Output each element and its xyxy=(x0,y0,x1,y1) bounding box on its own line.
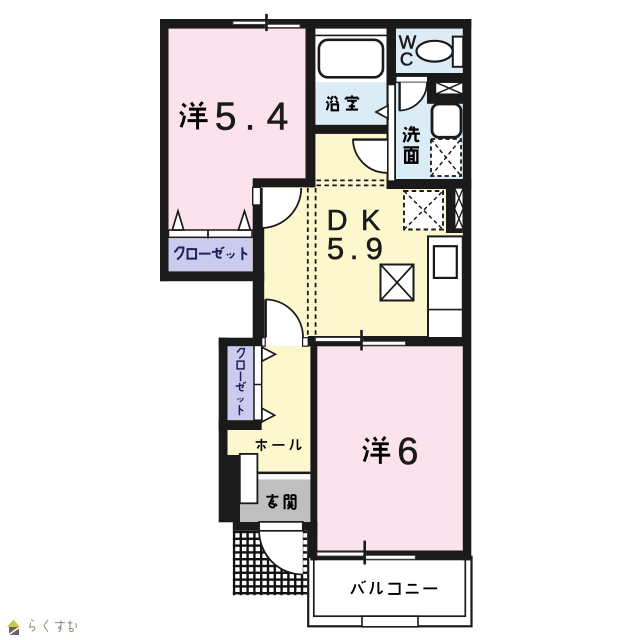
svg-text:9: 9 xyxy=(366,231,383,266)
svg-text:4: 4 xyxy=(267,96,289,139)
svg-text:C: C xyxy=(400,48,413,69)
svg-text:.: . xyxy=(245,96,256,139)
svg-text:.: . xyxy=(350,231,359,266)
svg-text:5: 5 xyxy=(215,96,237,139)
svg-text:6: 6 xyxy=(397,431,418,473)
svg-text:5: 5 xyxy=(327,231,344,266)
